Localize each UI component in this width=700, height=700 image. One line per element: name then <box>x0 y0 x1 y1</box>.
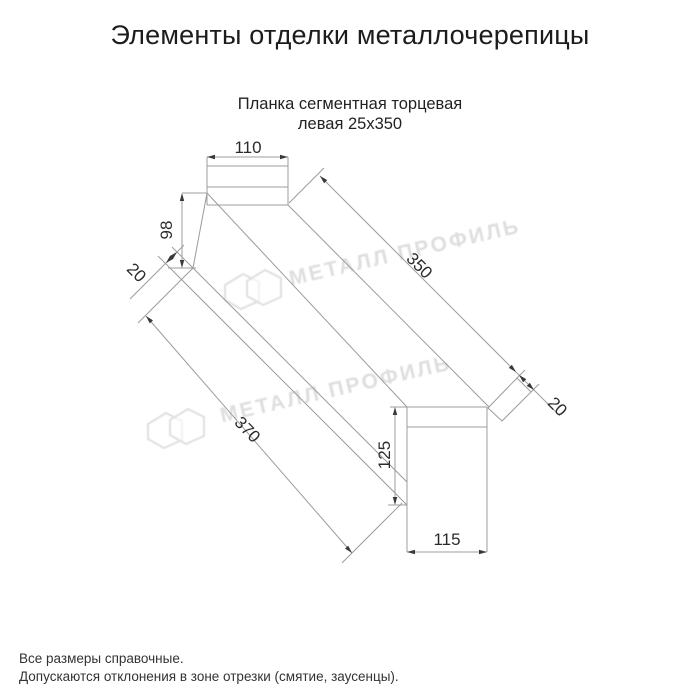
drawing-page: Элементы отделки металлочерепицы Планка … <box>0 0 700 700</box>
profile-right-end <box>407 378 531 552</box>
dimension-arrowheads <box>146 155 534 554</box>
profile-left-end <box>168 157 288 268</box>
dim-label-end-face-height: 125 <box>375 441 395 469</box>
footer-note-line1: Все размеры справочные. <box>19 650 399 668</box>
technical-drawing <box>0 0 700 700</box>
profile-body <box>158 193 489 505</box>
dim-label-flange-width: 110 <box>234 138 261 158</box>
dim-label-left-end-height: 98 <box>157 221 177 240</box>
footer-notes: Все размеры справочные. Допускаются откл… <box>19 650 399 685</box>
dimension-lines <box>130 157 560 563</box>
dim-label-end-face-width: 115 <box>433 530 460 550</box>
footer-note-line2: Допускаются отклонения в зоне отрезки (с… <box>19 668 399 686</box>
